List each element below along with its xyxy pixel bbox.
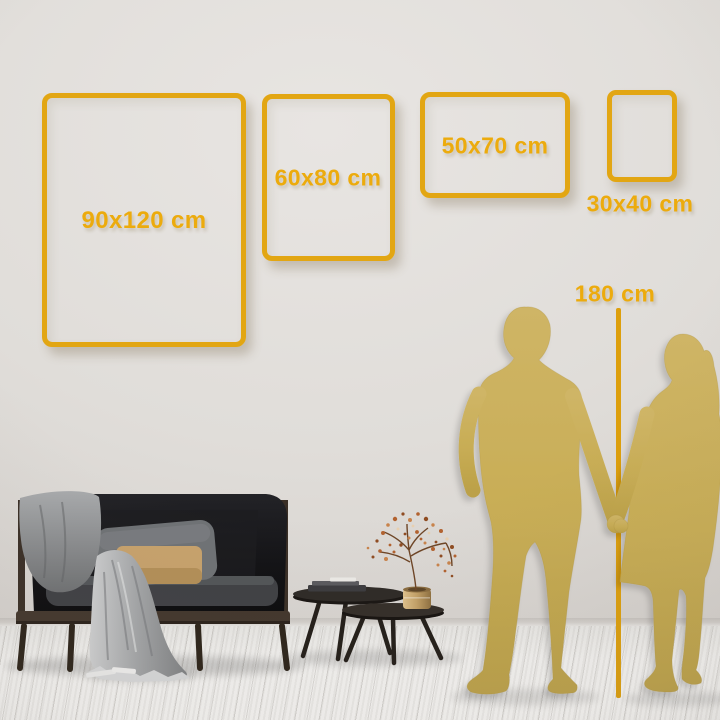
clasped-hands [614, 519, 628, 533]
size-label-60x80: 60x80 cm [275, 165, 382, 192]
dried-flower-branch [367, 512, 457, 590]
throw-blanket-on-armrest [19, 491, 101, 592]
coffee-tables [293, 512, 457, 663]
size-guide-scene: 90x120 cm 60x80 cm 50x70 cm 30x40 cm 180… [0, 0, 720, 720]
books [308, 578, 366, 592]
size-frame-30x40 [607, 90, 677, 182]
size-label-30x40: 30x40 cm [587, 191, 694, 218]
couple-silhouettes [466, 307, 720, 694]
man-silhouette [467, 307, 582, 694]
woman-silhouette [620, 334, 720, 692]
vase [403, 587, 431, 610]
man-right-arm [466, 394, 479, 490]
size-label-50x70: 50x70 cm [442, 133, 549, 160]
height-marker-label: 180 cm [575, 281, 655, 308]
size-label-90x120: 90x120 cm [81, 207, 206, 235]
sofa [16, 491, 290, 682]
